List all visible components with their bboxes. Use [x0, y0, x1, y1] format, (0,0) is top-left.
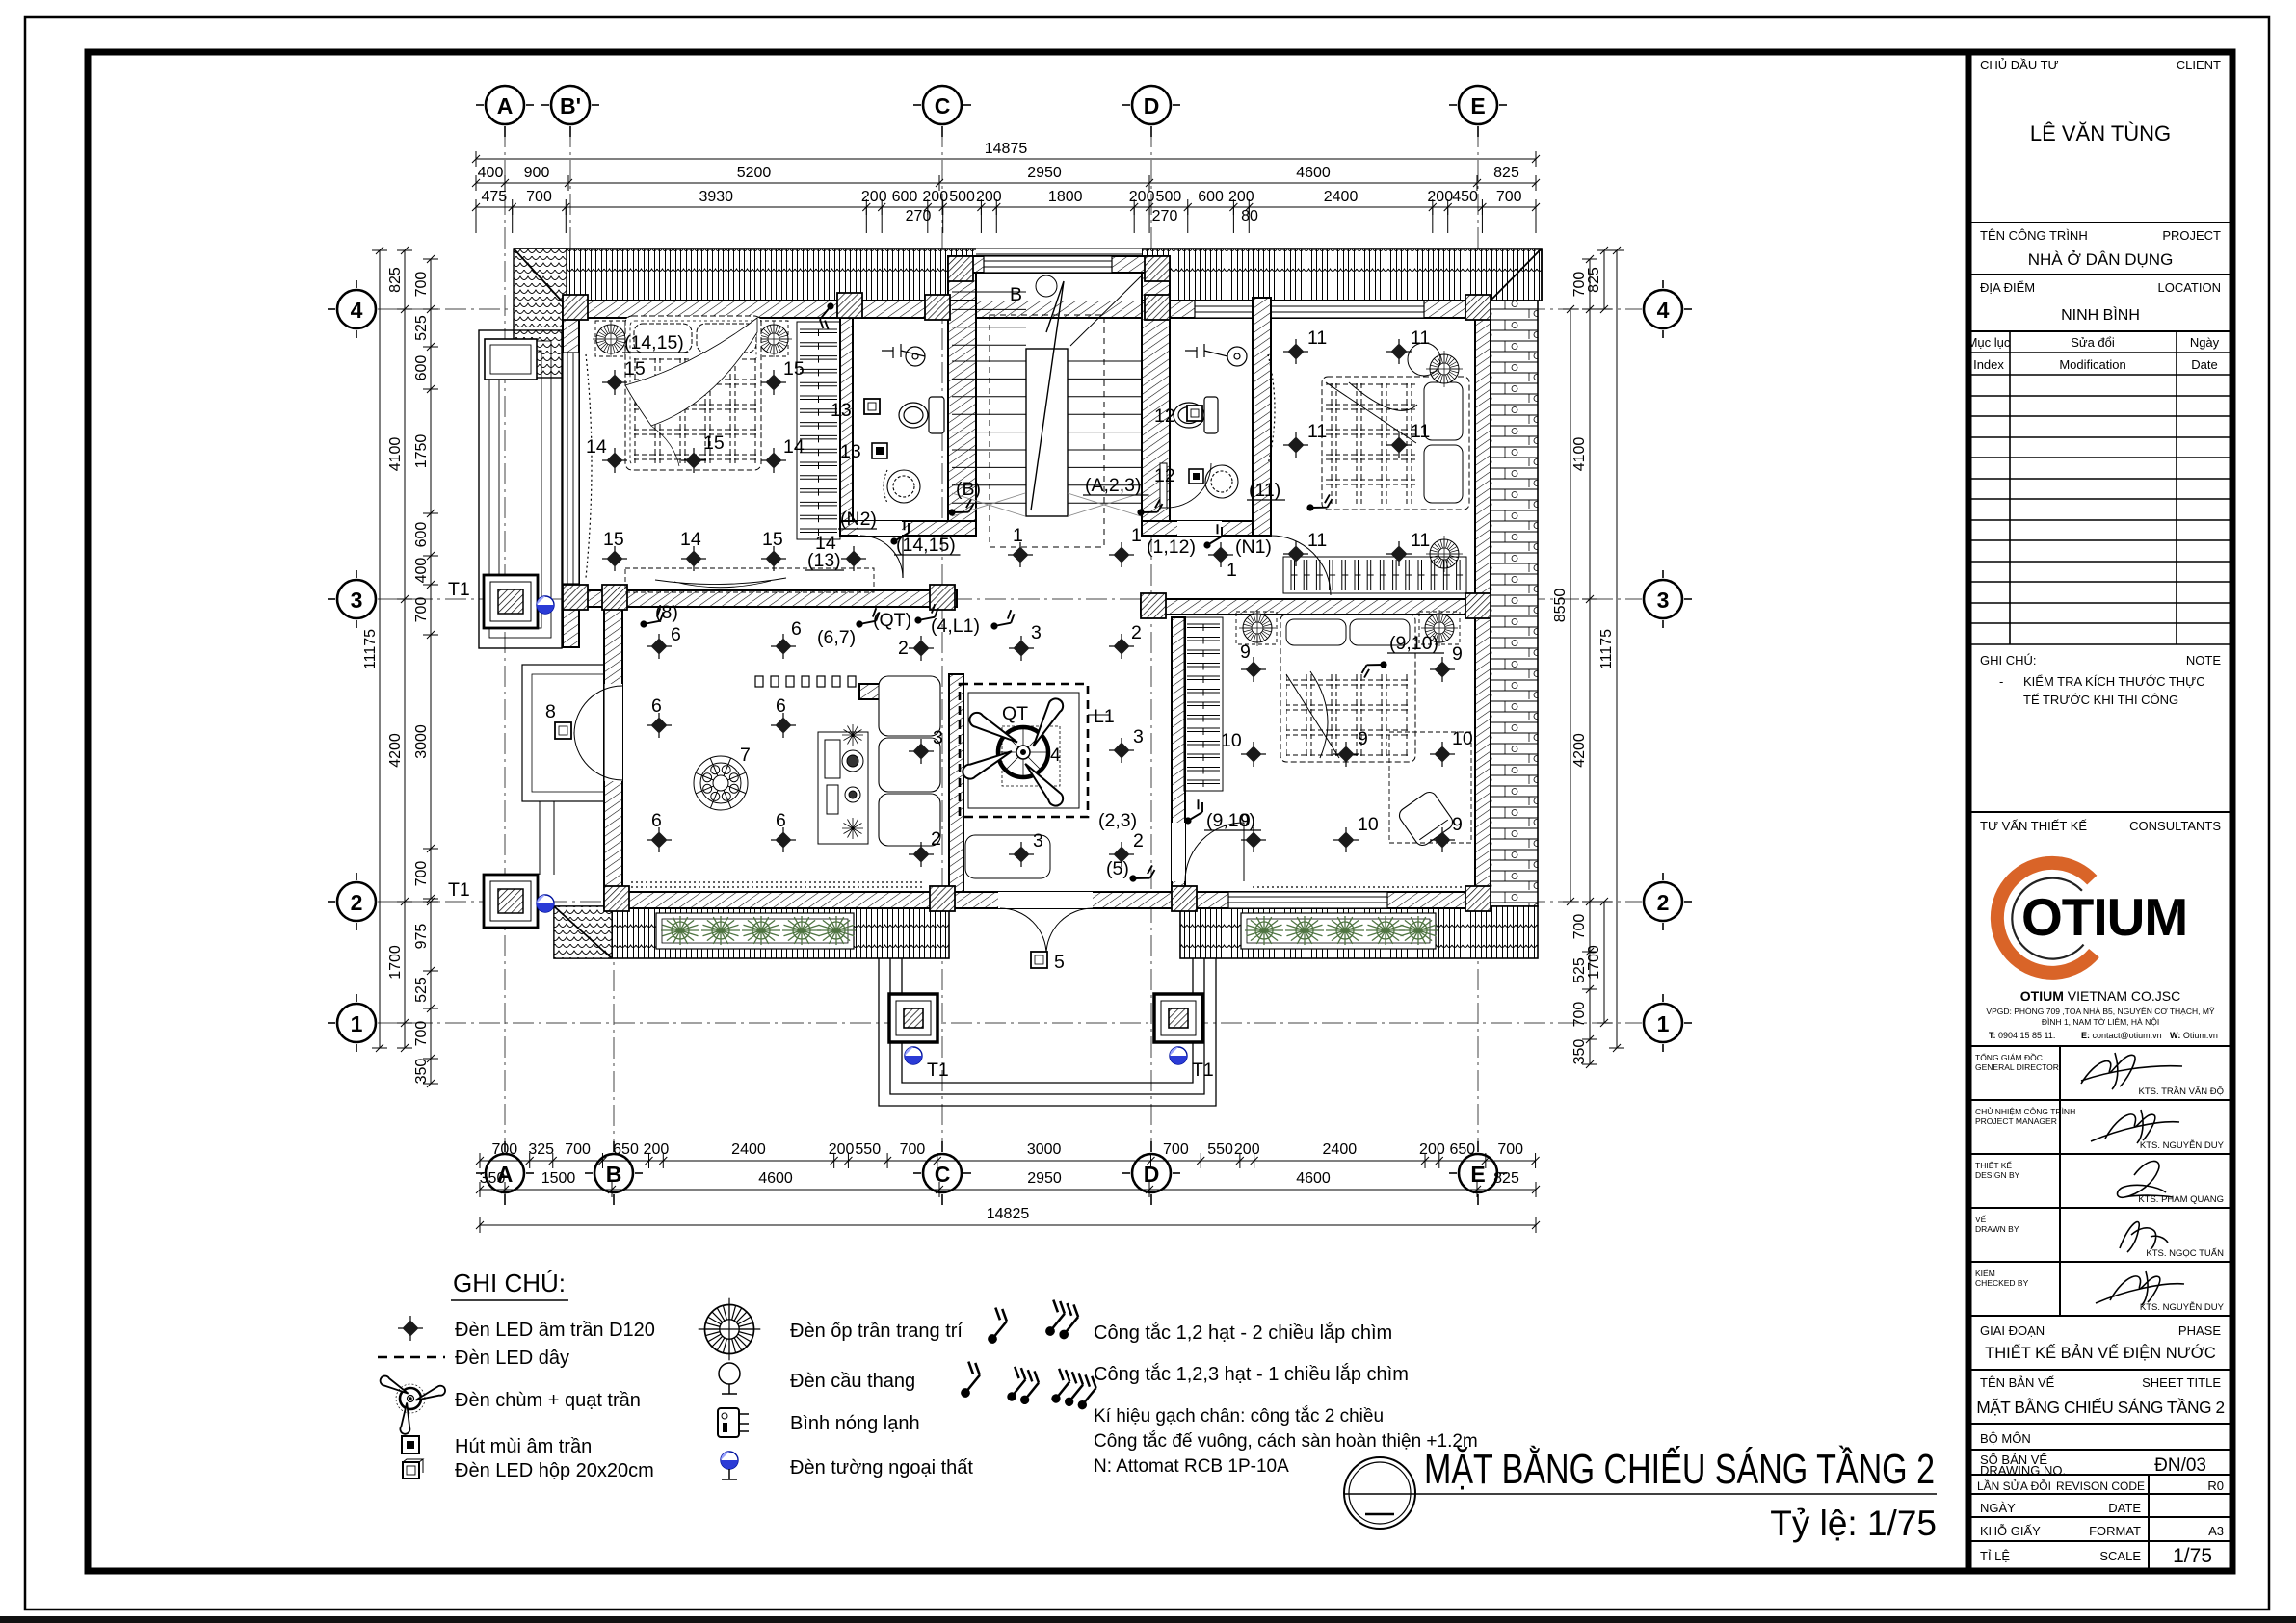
svg-text:E: contact@otium.vn: E: contact@otium.vn [2081, 1031, 2162, 1040]
svg-text:14: 14 [815, 533, 836, 554]
svg-text:PROJECT MANAGER: PROJECT MANAGER [1975, 1116, 2057, 1126]
svg-text:8: 8 [545, 701, 556, 722]
svg-text:(N2): (N2) [840, 509, 877, 530]
svg-text:QT: QT [1002, 703, 1028, 724]
svg-text:A3: A3 [2208, 1524, 2224, 1538]
svg-text:1: 1 [1227, 560, 1237, 581]
svg-text:Mục lục: Mục lục [1967, 335, 2011, 350]
svg-text:6: 6 [671, 624, 681, 645]
svg-text:3: 3 [351, 588, 363, 613]
svg-text:14: 14 [680, 529, 701, 550]
svg-text:T1: T1 [448, 579, 470, 600]
svg-text:KTS. TRẦN VĂN ĐỘ: KTS. TRẦN VĂN ĐỘ [2138, 1086, 2224, 1097]
svg-text:KTS. NGUYỄN DUY: KTS. NGUYỄN DUY [2140, 1139, 2225, 1151]
svg-text:6: 6 [791, 618, 802, 640]
svg-text:975: 975 [413, 924, 430, 950]
svg-text:525: 525 [413, 315, 430, 341]
svg-text:OTIUM: OTIUM [2021, 887, 2187, 947]
svg-text:6: 6 [776, 695, 786, 717]
svg-text:13: 13 [840, 441, 861, 462]
svg-text:Đèn chùm + quạt trần: Đèn chùm + quạt trần [455, 1390, 641, 1411]
svg-text:3930: 3930 [699, 189, 733, 205]
svg-text:B: B [606, 1162, 622, 1187]
svg-text:KIỂM: KIỂM [1975, 1268, 1995, 1278]
svg-text:(2,3): (2,3) [1098, 810, 1137, 831]
svg-text:700: 700 [900, 1141, 926, 1158]
svg-text:15: 15 [703, 432, 725, 454]
svg-text:600: 600 [892, 189, 918, 205]
svg-text:10: 10 [1358, 814, 1379, 835]
svg-text:R0: R0 [2207, 1479, 2224, 1493]
svg-text:600: 600 [413, 355, 430, 381]
svg-text:80: 80 [1241, 208, 1258, 224]
svg-text:200: 200 [829, 1141, 855, 1158]
svg-text:11: 11 [1307, 327, 1327, 349]
svg-text:200: 200 [644, 1141, 670, 1158]
svg-text:200: 200 [861, 189, 887, 205]
svg-text:DATE: DATE [2108, 1501, 2141, 1515]
svg-text:9: 9 [1240, 641, 1251, 663]
svg-text:600: 600 [1198, 189, 1224, 205]
svg-text:3: 3 [933, 727, 943, 748]
svg-text:1700: 1700 [387, 945, 404, 980]
svg-text:10: 10 [1452, 728, 1473, 749]
svg-text:4600: 4600 [1296, 165, 1331, 181]
svg-text:200: 200 [1234, 1141, 1260, 1158]
svg-text:11: 11 [1411, 327, 1430, 349]
svg-text:11: 11 [1411, 421, 1430, 442]
svg-text:B: B [1010, 284, 1022, 305]
svg-text:13: 13 [831, 400, 852, 421]
svg-text:825: 825 [1586, 267, 1602, 293]
svg-text:10: 10 [1221, 730, 1242, 751]
svg-text:2: 2 [351, 890, 363, 915]
svg-text:Kí hiệu gạch chân: công tắc 2: Kí hiệu gạch chân: công tắc 2 chiều [1094, 1405, 1384, 1427]
svg-text:15: 15 [783, 358, 805, 380]
svg-text:DESIGN BY: DESIGN BY [1975, 1170, 2020, 1180]
svg-text:CHỦ NHIỆM CÔNG TRÌNH: CHỦ NHIỆM CÔNG TRÌNH [1975, 1106, 2075, 1116]
svg-text:KTS. NGUYỄN DUY: KTS. NGUYỄN DUY [2140, 1301, 2225, 1313]
svg-text:SHEET TITLE: SHEET TITLE [2142, 1375, 2221, 1390]
svg-text:6: 6 [651, 695, 662, 717]
svg-text:4: 4 [351, 298, 363, 323]
svg-text:DRAWN BY: DRAWN BY [1975, 1224, 2019, 1234]
svg-text:(14,15): (14,15) [896, 535, 956, 556]
svg-text:5: 5 [1054, 952, 1065, 973]
svg-text:(A,2,3): (A,2,3) [1085, 475, 1142, 496]
svg-text:PROJECT: PROJECT [2162, 228, 2221, 243]
svg-text:LOCATION: LOCATION [2158, 280, 2222, 295]
svg-text:C: C [935, 1162, 951, 1187]
svg-text:(6,7): (6,7) [817, 627, 856, 648]
svg-text:1/75: 1/75 [2173, 1545, 2212, 1567]
svg-text:325: 325 [528, 1141, 554, 1158]
svg-text:700: 700 [1163, 1141, 1189, 1158]
svg-text:200: 200 [1419, 1141, 1445, 1158]
svg-text:GHI CHÚ:: GHI CHÚ: [453, 1269, 566, 1297]
svg-text:400: 400 [413, 558, 430, 584]
svg-text:4200: 4200 [1571, 733, 1588, 768]
svg-text:W: Otium.vn: W: Otium.vn [2170, 1031, 2218, 1040]
svg-text:(11): (11) [1249, 480, 1280, 501]
svg-text:Bình nóng lạnh: Bình nóng lạnh [790, 1413, 920, 1434]
svg-text:LÊ VĂN TÙNG: LÊ VĂN TÙNG [2030, 121, 2171, 145]
svg-text:(4,L1): (4,L1) [931, 615, 980, 637]
svg-text:TỈ LỆ: TỈ LỆ [1980, 1549, 2010, 1563]
svg-text:Ngày: Ngày [2190, 335, 2220, 350]
svg-text:11: 11 [1411, 530, 1430, 551]
svg-text:700: 700 [565, 1141, 591, 1158]
svg-text:825: 825 [387, 267, 404, 293]
svg-text:TÊN BẢN VẾ: TÊN BẢN VẾ [1980, 1375, 2055, 1390]
svg-text:350: 350 [1571, 1039, 1588, 1065]
svg-text:11175: 11175 [1598, 629, 1615, 669]
svg-text:200: 200 [1228, 189, 1254, 205]
svg-text:2400: 2400 [1323, 1141, 1358, 1158]
svg-text:OTIUM VIETNAM CO.JSC: OTIUM VIETNAM CO.JSC [2020, 988, 2180, 1004]
svg-text:5200: 5200 [737, 165, 772, 181]
svg-text:3: 3 [1133, 726, 1144, 747]
svg-text:L1: L1 [1094, 706, 1115, 727]
svg-text:200: 200 [976, 189, 1002, 205]
svg-text:2: 2 [931, 828, 941, 850]
svg-text:700: 700 [413, 597, 430, 623]
svg-text:Đèn LED hộp 20x20cm: Đèn LED hộp 20x20cm [455, 1460, 654, 1481]
svg-text:KHỖ GIẤY: KHỖ GIẤY [1980, 1524, 2041, 1538]
svg-text:THIẾT KẾ BẢN VẾ ĐIỆN NƯỚC: THIẾT KẾ BẢN VẾ ĐIỆN NƯỚC [1985, 1344, 2216, 1362]
svg-text:Modification: Modification [2059, 357, 2125, 372]
svg-text:D: D [1144, 93, 1160, 118]
svg-text:9: 9 [1452, 643, 1463, 665]
svg-text:450: 450 [1452, 189, 1478, 205]
svg-text:(8): (8) [655, 602, 678, 623]
svg-text:MẶT BẰNG CHIẾU SÁNG TẦNG 2: MẶT BẰNG CHIẾU SÁNG TẦNG 2 [1424, 1445, 1935, 1493]
svg-text:VPGD: PHÒNG 709 ,TÒA NHÀ B5, N: VPGD: PHÒNG 709 ,TÒA NHÀ B5, NGUYỄN CƠ T… [1986, 1006, 2214, 1016]
svg-text:2950: 2950 [1027, 1170, 1062, 1187]
svg-text:Đèn tường ngoại thất: Đèn tường ngoại thất [790, 1457, 973, 1479]
svg-text:1: 1 [351, 1011, 363, 1036]
svg-text:3: 3 [1033, 830, 1043, 851]
svg-text:NHÀ Ở DÂN DỤNG: NHÀ Ở DÂN DỤNG [2028, 250, 2174, 269]
svg-text:T: 0904 15 85 11.: T: 0904 15 85 11. [1989, 1031, 2055, 1040]
svg-text:TƯ VẤN THIẾT KẾ: TƯ VẤN THIẾT KẾ [1980, 819, 2087, 833]
svg-text:T1: T1 [448, 879, 470, 901]
svg-text:500: 500 [1156, 189, 1182, 205]
svg-text:NOTE: NOTE [2186, 653, 2221, 668]
svg-text:Đèn cầu thang: Đèn cầu thang [790, 1371, 915, 1392]
svg-text:4100: 4100 [387, 437, 404, 472]
svg-text:DRAWING NO.: DRAWING NO. [1980, 1463, 2066, 1478]
svg-text:Công tắc 1,2 hạt - 2 chiều lắp: Công tắc 1,2 hạt - 2 chiều lắp chìm [1094, 1322, 1392, 1344]
svg-text:E: E [1470, 1162, 1485, 1187]
svg-text:4100: 4100 [1571, 437, 1588, 472]
svg-text:Công tắc đế vuông, cách sàn ho: Công tắc đế vuông, cách sàn hoàn thiện +… [1094, 1430, 1478, 1452]
svg-text:KIỂM TRA KÍCH THƯỚC THỰC: KIỂM TRA KÍCH THƯỚC THỰC [2023, 674, 2205, 689]
svg-text:Công tắc 1,2,3 hạt - 1 chiều l: Công tắc 1,2,3 hạt - 1 chiều lắp chìm [1094, 1363, 1409, 1385]
svg-text:550: 550 [1207, 1141, 1233, 1158]
svg-text:11: 11 [1307, 530, 1327, 551]
svg-text:TỔNG GIÁM ĐỒC: TỔNG GIÁM ĐỒC [1975, 1052, 2043, 1062]
svg-text:1700: 1700 [1586, 945, 1602, 980]
svg-text:2: 2 [1133, 830, 1144, 851]
svg-text:1: 1 [1131, 525, 1142, 546]
svg-text:THIẾT KẾ: THIẾT KẾ [1975, 1161, 2012, 1170]
svg-text:SCALE: SCALE [2099, 1549, 2141, 1563]
svg-text:BỘ MÔN: BỘ MÔN [1980, 1431, 2031, 1446]
svg-text:GIAI ĐOẠN: GIAI ĐOẠN [1980, 1323, 2045, 1338]
svg-text:12: 12 [1154, 465, 1175, 486]
svg-text:9: 9 [1358, 728, 1368, 749]
svg-text:14875: 14875 [985, 141, 1028, 157]
svg-text:700: 700 [1571, 1002, 1588, 1028]
svg-text:14: 14 [586, 436, 607, 458]
svg-text:200: 200 [922, 189, 948, 205]
svg-text:GENERAL DIRECTOR: GENERAL DIRECTOR [1975, 1062, 2059, 1072]
svg-text:GHI CHÚ:: GHI CHÚ: [1980, 653, 2037, 668]
svg-text:2: 2 [1131, 622, 1142, 643]
svg-text:Đèn ốp trần trang trí: Đèn ốp trần trang trí [790, 1321, 963, 1342]
svg-text:CONSULTANTS: CONSULTANTS [2129, 819, 2221, 833]
svg-text:VẾ: VẾ [1975, 1215, 1987, 1224]
svg-text:700: 700 [1496, 189, 1522, 205]
svg-text:14825: 14825 [987, 1206, 1030, 1222]
svg-text:200: 200 [1427, 189, 1453, 205]
svg-text:1: 1 [1657, 1011, 1670, 1036]
svg-text:9: 9 [1240, 810, 1251, 831]
svg-text:700: 700 [413, 272, 430, 298]
svg-text:700: 700 [413, 1021, 430, 1047]
svg-text:4200: 4200 [387, 733, 404, 768]
svg-text:NINH BÌNH: NINH BÌNH [2061, 305, 2140, 324]
svg-text:4600: 4600 [1296, 1170, 1331, 1187]
svg-text:Đèn LED dây: Đèn LED dây [455, 1348, 569, 1369]
svg-text:FORMAT: FORMAT [2089, 1524, 2141, 1538]
svg-text:475: 475 [482, 189, 508, 205]
svg-text:6: 6 [651, 810, 662, 831]
svg-text:15: 15 [624, 358, 646, 380]
svg-text:C: C [935, 93, 951, 118]
svg-text:CHỦ ĐẦU TƯ: CHỦ ĐẦU TƯ [1980, 58, 2059, 72]
svg-text:650: 650 [1449, 1141, 1475, 1158]
svg-text:Hút mùi âm trần: Hút mùi âm trần [455, 1436, 592, 1457]
svg-text:Date: Date [2191, 357, 2217, 372]
svg-text:1750: 1750 [413, 434, 430, 469]
svg-text:NGÀY: NGÀY [1980, 1501, 2016, 1515]
svg-text:N: Attomat RCB 1P-10A: N: Attomat RCB 1P-10A [1094, 1456, 1289, 1477]
svg-text:700: 700 [413, 861, 430, 887]
svg-text:2: 2 [898, 638, 909, 659]
svg-text:4600: 4600 [758, 1170, 793, 1187]
svg-text:ĐỊA ĐIỂM: ĐỊA ĐIỂM [1980, 280, 2035, 295]
svg-text:14: 14 [783, 436, 805, 458]
svg-text:825: 825 [1493, 165, 1519, 181]
svg-text:7: 7 [740, 745, 751, 766]
svg-text:550: 550 [855, 1141, 881, 1158]
svg-text:15: 15 [603, 529, 624, 550]
svg-text:Sửa đổi: Sửa đổi [2071, 335, 2115, 350]
svg-text:12: 12 [1154, 406, 1175, 427]
svg-text:(5): (5) [1106, 858, 1129, 879]
svg-text:600: 600 [413, 522, 430, 548]
svg-text:525: 525 [413, 977, 430, 1003]
svg-text:3: 3 [1657, 588, 1670, 613]
svg-text:(9,10): (9,10) [1389, 633, 1438, 654]
svg-text:(14,15): (14,15) [624, 332, 684, 353]
svg-text:CHECKED BY: CHECKED BY [1975, 1278, 2029, 1288]
svg-text:700: 700 [1571, 914, 1588, 940]
svg-text:A: A [497, 93, 514, 118]
svg-text:(N1): (N1) [1235, 537, 1272, 558]
svg-text:500: 500 [949, 189, 975, 205]
svg-text:Đèn LED âm trần D120: Đèn LED âm trần D120 [455, 1320, 655, 1341]
svg-text:E: E [1470, 93, 1485, 118]
svg-text:9: 9 [1452, 814, 1463, 835]
svg-text:4: 4 [1050, 745, 1061, 766]
svg-text:PHASE: PHASE [2178, 1323, 2221, 1338]
svg-text:1500: 1500 [541, 1170, 576, 1187]
svg-text:T1: T1 [1192, 1060, 1214, 1081]
svg-text:Index: Index [1973, 357, 2004, 372]
svg-text:TÊN CÔNG TRÌNH: TÊN CÔNG TRÌNH [1980, 228, 2088, 243]
svg-text:1800: 1800 [1048, 189, 1083, 205]
svg-text:8550: 8550 [1552, 589, 1569, 623]
svg-text:(1,12): (1,12) [1147, 537, 1196, 558]
svg-text:TẾ TRƯỚC KHI THI CÔNG: TẾ TRƯỚC KHI THI CÔNG [2023, 693, 2178, 707]
svg-text:3000: 3000 [1027, 1141, 1062, 1158]
svg-text:2400: 2400 [731, 1141, 766, 1158]
svg-text:T1: T1 [927, 1060, 949, 1081]
svg-text:KTS. NGỌC TUẤN: KTS. NGỌC TUẤN [2146, 1248, 2224, 1259]
svg-text:(B): (B) [956, 479, 981, 500]
svg-text:350: 350 [413, 1059, 430, 1085]
svg-text:2950: 2950 [1027, 165, 1062, 181]
svg-text:11175: 11175 [362, 629, 379, 669]
svg-text:B': B' [560, 93, 581, 118]
svg-text:-: - [1999, 674, 2003, 689]
svg-text:350: 350 [480, 1170, 506, 1187]
svg-text:2400: 2400 [1324, 189, 1359, 205]
svg-text:REVISON CODE: REVISON CODE [2056, 1479, 2145, 1493]
svg-text:700: 700 [492, 1141, 518, 1158]
svg-text:270: 270 [1152, 208, 1178, 224]
svg-text:15: 15 [762, 529, 783, 550]
svg-text:825: 825 [1493, 1170, 1519, 1187]
svg-text:ĐN/03: ĐN/03 [2154, 1455, 2206, 1476]
svg-text:900: 900 [524, 165, 550, 181]
svg-text:700: 700 [1497, 1141, 1523, 1158]
svg-text:6: 6 [776, 810, 786, 831]
svg-text:11: 11 [1307, 421, 1327, 442]
svg-text:400: 400 [478, 165, 504, 181]
svg-text:LẦN SỬA ĐỖI: LẦN SỬA ĐỖI [1977, 1479, 2051, 1493]
svg-text:650: 650 [613, 1141, 639, 1158]
svg-text:3000: 3000 [413, 724, 430, 759]
svg-text:200: 200 [1129, 189, 1155, 205]
svg-text:1: 1 [1013, 525, 1023, 546]
svg-text:3: 3 [1031, 622, 1042, 643]
svg-text:Tỷ lệ: 1/75: Tỷ lệ: 1/75 [1770, 1504, 1937, 1543]
svg-text:MẶT BẰNG CHIẾU SÁNG TẦNG 2: MẶT BẰNG CHIẾU SÁNG TẦNG 2 [1976, 1398, 2224, 1417]
svg-text:CLIENT: CLIENT [2177, 58, 2221, 72]
svg-text:4: 4 [1657, 298, 1670, 323]
svg-text:700: 700 [526, 189, 552, 205]
svg-text:2: 2 [1657, 890, 1670, 915]
svg-text:ĐÌNH 1, NAM TỜ LIÊM, HÀ NỘI: ĐÌNH 1, NAM TỜ LIÊM, HÀ NỘI [2042, 1017, 2159, 1027]
